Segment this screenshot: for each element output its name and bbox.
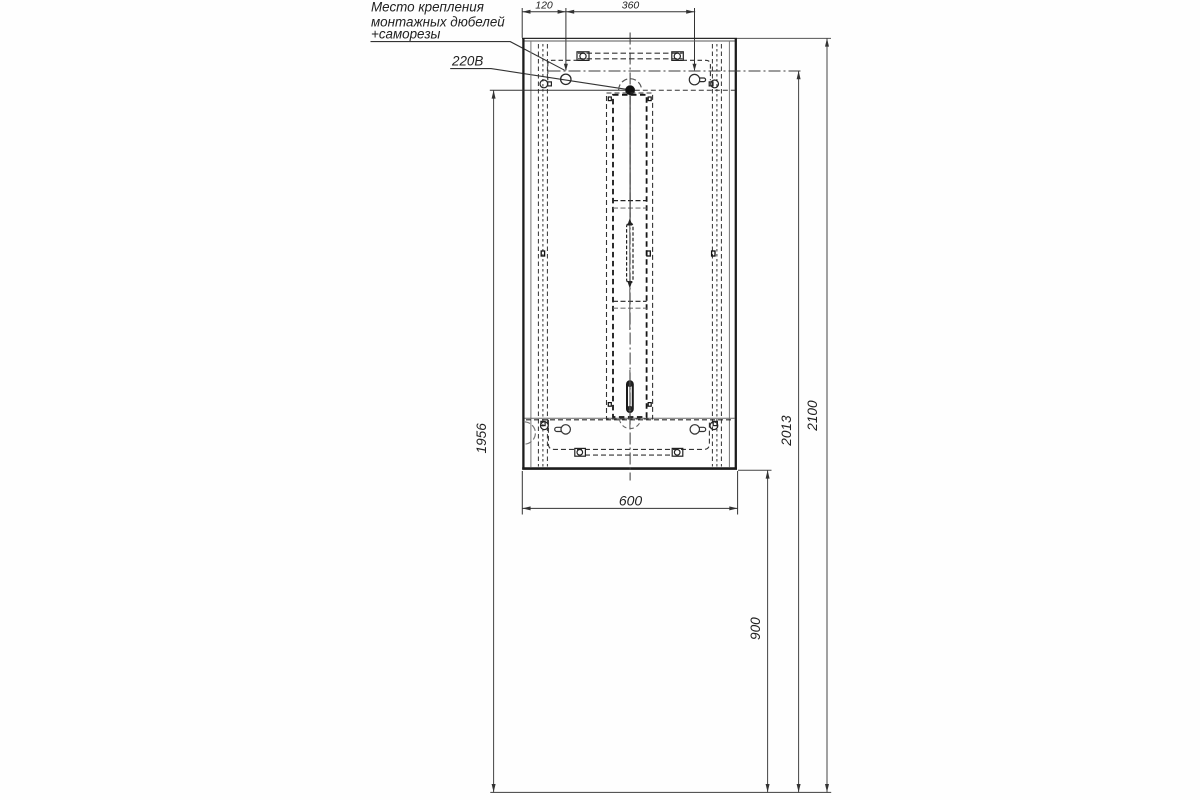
svg-text:220В: 220В	[451, 54, 483, 69]
svg-text:1956: 1956	[474, 423, 489, 454]
svg-text:120: 120	[535, 0, 553, 12]
svg-text:2013: 2013	[779, 415, 794, 447]
svg-text:+саморезы: +саморезы	[371, 27, 441, 42]
svg-text:600: 600	[619, 492, 643, 508]
svg-text:900: 900	[748, 617, 763, 640]
svg-text:Место крепления: Место крепления	[371, 0, 484, 15]
svg-text:360: 360	[622, 0, 640, 12]
svg-text:2100: 2100	[805, 400, 820, 432]
